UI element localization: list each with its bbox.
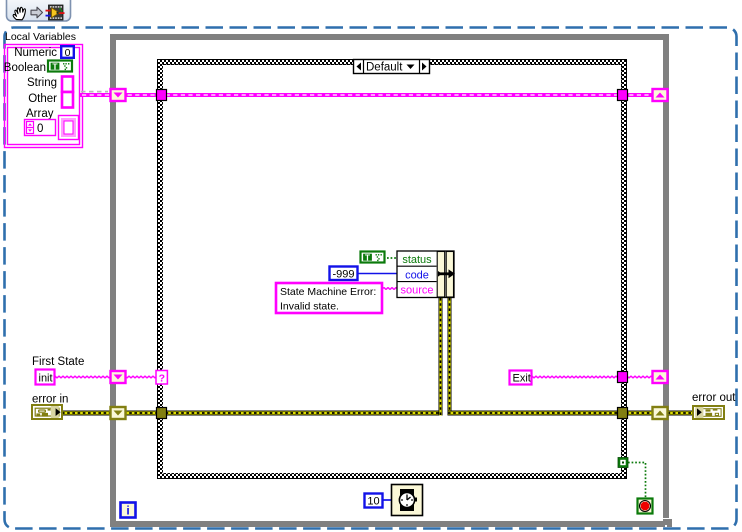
svg-text:Boolean: Boolean [4, 62, 46, 74]
svg-text:Other: Other [28, 93, 57, 105]
svg-text:0: 0 [37, 123, 43, 135]
svg-text:Exit: Exit [513, 373, 531, 385]
svg-text:Array: Array [26, 108, 54, 120]
svg-text:Local Variables: Local Variables [5, 31, 76, 43]
svg-text:?: ? [159, 373, 165, 385]
svg-text:init: init [39, 373, 53, 385]
svg-text:status: status [402, 254, 432, 266]
svg-text:T: T [52, 61, 58, 71]
svg-text:i: i [126, 504, 129, 518]
svg-text:0: 0 [65, 47, 71, 59]
svg-text:T: T [365, 252, 371, 262]
svg-text:code: code [405, 269, 429, 281]
svg-text:Default: Default [366, 62, 403, 74]
svg-text:State Machine Error:: State Machine Error: [280, 286, 376, 298]
svg-text:String: String [27, 77, 57, 89]
svg-text:Invalid state.: Invalid state. [280, 301, 339, 313]
svg-text:-999: -999 [332, 269, 354, 281]
svg-text:error out: error out [692, 392, 736, 404]
svg-text:Numeric: Numeric [14, 47, 57, 59]
svg-text:source: source [400, 285, 433, 297]
svg-text:First State: First State [32, 356, 84, 368]
svg-text:error in: error in [32, 394, 68, 406]
svg-text:10: 10 [367, 496, 379, 508]
